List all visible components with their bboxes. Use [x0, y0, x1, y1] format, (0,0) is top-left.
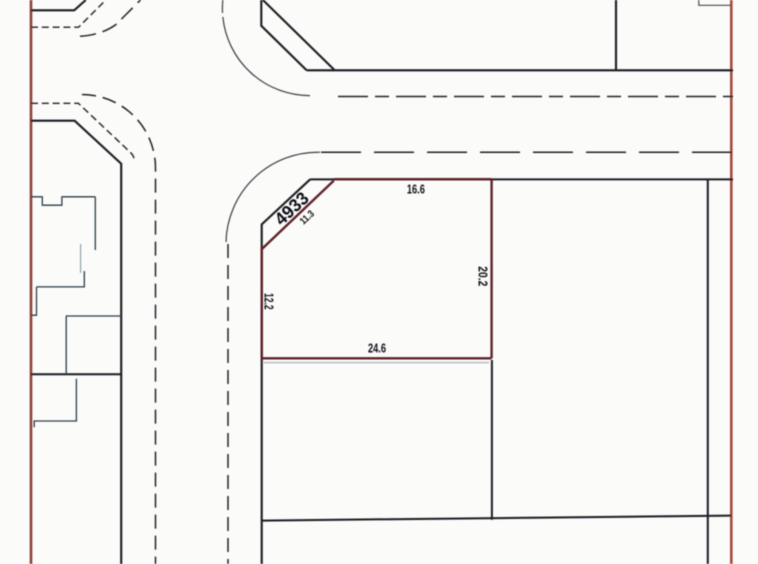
svg-text:24.6: 24.6	[368, 342, 386, 356]
svg-text:16.6: 16.6	[407, 182, 425, 196]
svg-text:20.2: 20.2	[475, 266, 489, 286]
svg-text:12.2: 12.2	[262, 293, 276, 310]
